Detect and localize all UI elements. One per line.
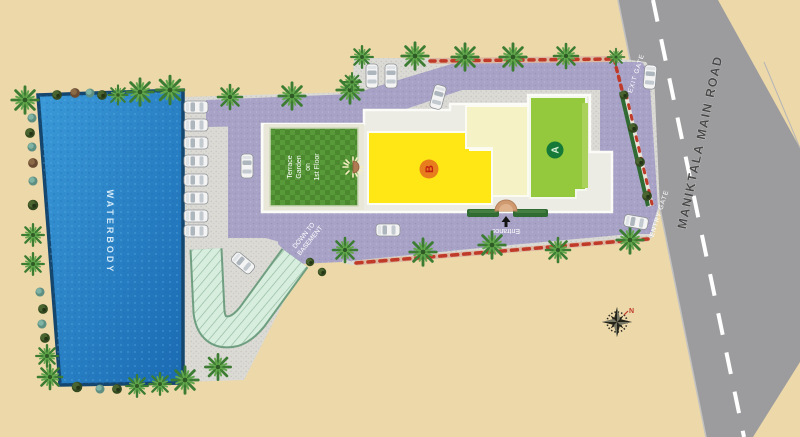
bush-icon <box>52 90 62 100</box>
car-icon <box>184 101 208 113</box>
tree-icon <box>172 367 198 393</box>
tree-icon <box>38 365 62 389</box>
bush-icon <box>628 123 638 133</box>
building-b-label: B <box>424 165 436 173</box>
tree-icon <box>156 76 184 104</box>
tree-icon <box>279 83 305 109</box>
tree-icon <box>22 253 44 275</box>
building-a-label: A <box>551 146 562 153</box>
car-icon <box>184 210 208 222</box>
bush-icon <box>28 158 38 168</box>
bush-icon <box>27 142 36 151</box>
car-icon <box>643 65 657 90</box>
bush-icon <box>97 90 107 100</box>
bush-icon <box>40 333 50 343</box>
tree-icon <box>149 373 171 395</box>
car-icon <box>184 119 208 131</box>
bush-icon <box>28 200 39 211</box>
compass-north-label: N <box>629 308 634 315</box>
tree-icon <box>410 239 436 265</box>
waterbody-label: WATERBODY <box>105 190 115 275</box>
car-icon <box>184 192 208 204</box>
tree-icon <box>608 49 625 66</box>
car-icon <box>184 225 208 237</box>
tree-icon <box>479 232 505 258</box>
tree-icon <box>546 238 570 262</box>
tree-icon <box>402 43 428 69</box>
tree-icon <box>108 85 127 104</box>
bush-icon <box>70 88 80 98</box>
tree-icon <box>554 44 578 68</box>
tree-icon <box>22 224 44 246</box>
bush-icon <box>72 382 83 393</box>
tree-icon <box>12 87 38 113</box>
bush-icon <box>635 157 645 167</box>
tree-icon <box>500 44 526 70</box>
tree-icon <box>36 345 58 367</box>
bush-icon <box>306 258 314 266</box>
car-icon <box>184 155 208 167</box>
bush-icon <box>37 319 46 328</box>
bush-icon <box>35 287 44 296</box>
tree-icon <box>452 44 478 70</box>
tree-icon <box>205 354 230 379</box>
car-icon <box>241 154 253 178</box>
car-icon <box>366 64 378 88</box>
site-plan-canvas: B A Entrance <box>0 0 800 437</box>
tree-icon <box>617 227 643 253</box>
bush-icon <box>318 268 326 276</box>
car-icon <box>184 174 208 186</box>
bush-icon <box>38 304 48 314</box>
bush-icon <box>27 113 36 122</box>
bush-icon <box>112 384 122 394</box>
entrance-label: Entrance <box>492 227 520 234</box>
terrace-label-line2: Garden <box>296 155 303 178</box>
bush-icon <box>25 128 35 138</box>
terrace-label-line4: 1st Floor <box>314 153 321 181</box>
bush-icon <box>28 176 37 185</box>
tree-icon <box>333 238 357 262</box>
terrace-label-line1: Terrace <box>287 155 294 178</box>
terrace-label-line3: on <box>305 163 312 171</box>
car-icon <box>376 224 400 236</box>
tree-icon <box>218 85 242 109</box>
bush-icon <box>95 384 104 393</box>
car-icon <box>184 137 208 149</box>
sun-ornament-icon <box>343 157 363 177</box>
tree-icon <box>343 73 361 91</box>
tree-icon <box>126 375 148 397</box>
site-plan: B A Entrance <box>0 0 800 437</box>
tree-icon <box>127 79 153 105</box>
bush-icon <box>642 191 652 201</box>
car-icon <box>385 64 397 88</box>
bush-icon <box>85 88 94 97</box>
